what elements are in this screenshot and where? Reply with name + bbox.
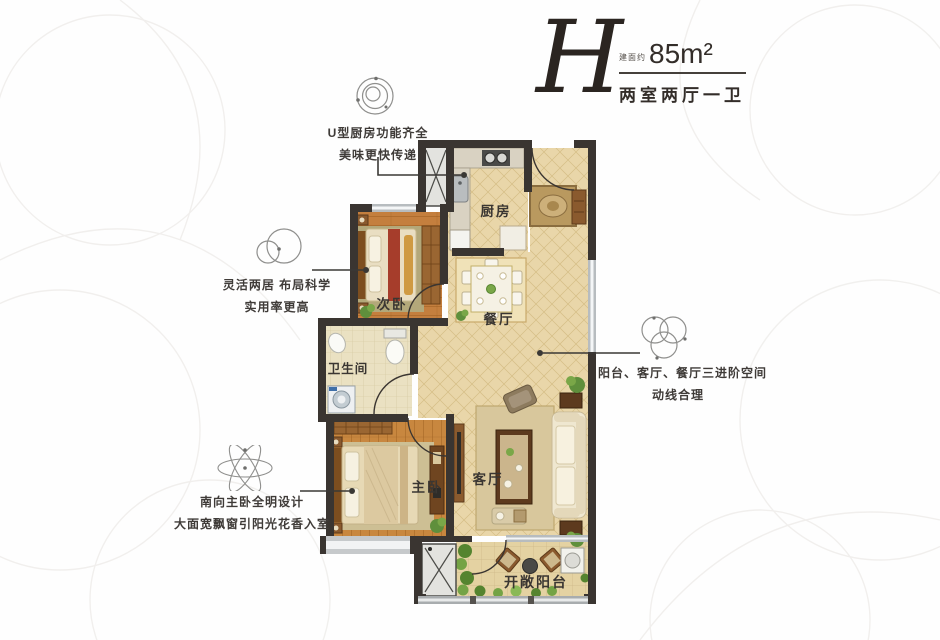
feature-master-line1: 南向主卧全明设计 (166, 493, 338, 510)
feature-flow-line2: 动线合理 (598, 386, 758, 403)
atom-ellipses-icon (213, 445, 277, 491)
dining-window (588, 260, 596, 352)
feature-flexible-line1: 灵活两居 布局科学 (197, 276, 357, 293)
toilet-bowl (386, 340, 404, 364)
master-bay-window (320, 536, 416, 554)
room-label-dining: 餐厅 (483, 311, 515, 327)
bedroom2-bed-headboard (358, 231, 366, 299)
bedroom2-bed-runner (388, 229, 400, 301)
feature-flexible-line2: 实用率更高 (197, 298, 357, 315)
plan-letter: H (536, 6, 623, 110)
room-label-bathroom: 卫生间 (328, 361, 369, 376)
feature-master-text: 南向主卧全明设计 大面宽飘窗引阳光花香入室 (166, 493, 338, 532)
balcony-table (523, 559, 538, 574)
duct-shaft (422, 544, 456, 596)
kitchen-sink (452, 176, 468, 202)
kitchen-bar-counter (500, 226, 526, 250)
balcony-sliding-window (506, 535, 588, 542)
overlapping-circles-icon (250, 226, 304, 270)
entry-cabinet (572, 190, 586, 224)
feature-flexible-text: 灵活两居 布局科学 实用率更高 (197, 276, 357, 315)
concentric-circles-icon (350, 70, 402, 122)
area-prefix-label: 建面约 (619, 52, 646, 68)
side-table-top (560, 393, 582, 408)
balcony-railing (418, 596, 588, 604)
bedroom2-window (372, 204, 416, 212)
room-label-kitchen: 厨房 (481, 203, 512, 219)
toilet-tank (384, 329, 406, 338)
feature-kitchen-line2: 美味更快传递 (298, 146, 458, 163)
area-value: 85m² (649, 40, 713, 68)
room-label-bedroom2: 次卧 (377, 296, 408, 312)
floor-plan: 厨房 次卧 餐厅 卫生间 主卧 客厅 开敞阳台 (0, 0, 940, 640)
feature-flow-text: 阳台、客厅、餐厅三进阶空间 动线合理 (598, 364, 758, 403)
feature-flow-line1: 阳台、客厅、餐厅三进阶空间 (598, 364, 758, 381)
fridge (450, 230, 470, 250)
feature-kitchen-line1: U型厨房功能齐全 (298, 124, 458, 141)
room-label-master: 主卧 (412, 479, 443, 495)
room-label-balcony: 开敞阳台 (504, 574, 568, 590)
feature-kitchen-text: U型厨房功能齐全 美味更快传递 (298, 124, 458, 163)
room-label-living: 客厅 (472, 471, 504, 487)
venn-circles-icon (636, 312, 692, 364)
header-area-block: 建面约 85m² 两室两厅一卫 (619, 40, 759, 106)
header-divider (619, 72, 746, 74)
feature-master-line2: 大面宽飘窗引阳光花香入室 (166, 515, 338, 532)
layout-type-label: 两室两厅一卫 (619, 81, 759, 106)
